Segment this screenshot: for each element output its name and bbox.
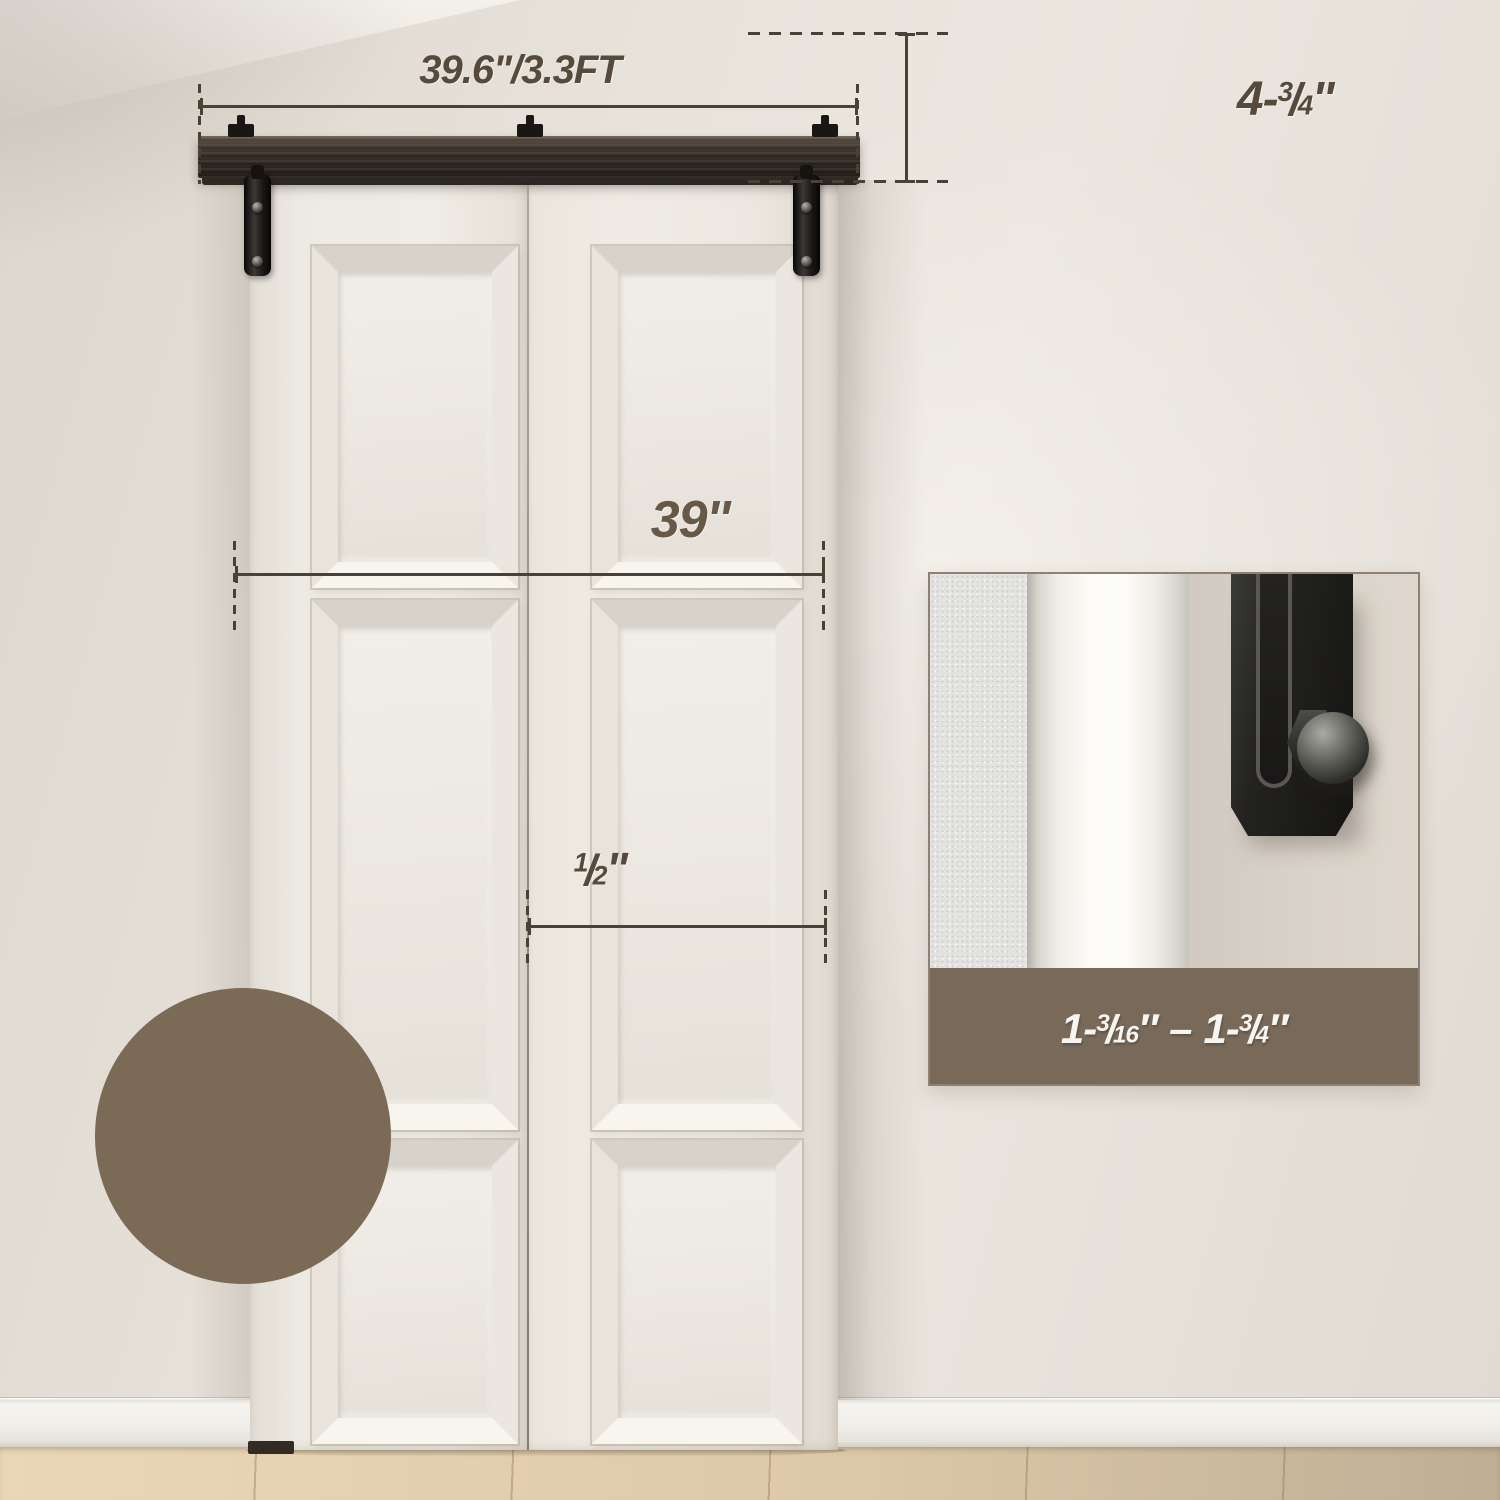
inset-door-edge bbox=[1027, 574, 1189, 968]
inset-hanger-strap bbox=[1231, 574, 1353, 836]
door-center-seam bbox=[527, 182, 529, 1450]
half-inch-dimension-label: 1/2'' bbox=[500, 842, 700, 896]
track-mount-clip bbox=[517, 124, 543, 137]
inset-dome-bolt bbox=[1297, 712, 1369, 784]
bifold-barn-door bbox=[250, 182, 838, 1450]
dashed-guide-line bbox=[526, 890, 529, 967]
door-shadow-right bbox=[836, 180, 926, 1400]
hanger-screw bbox=[252, 202, 263, 213]
hanger-screw bbox=[801, 256, 812, 267]
dashed-guide-line bbox=[824, 890, 827, 967]
dashed-guide-line bbox=[233, 541, 236, 637]
dashed-guide-line bbox=[748, 180, 948, 183]
track-mount-clip bbox=[228, 124, 254, 137]
hardware-closeup-inset: 1-3/16″–1-3/4″ bbox=[928, 572, 1420, 1086]
thickness-range-label: 1-3/16″–1-3/4″ bbox=[930, 968, 1418, 1084]
track-height-dimension-line bbox=[905, 33, 908, 183]
color-swatch-circle bbox=[95, 988, 391, 1284]
door-width-dimension-line bbox=[235, 573, 825, 576]
dashed-guide-line bbox=[748, 32, 948, 35]
inset-strap-slot bbox=[1256, 574, 1292, 788]
track-mount-clip bbox=[812, 124, 838, 137]
hanger-screw bbox=[801, 202, 812, 213]
inset-photo bbox=[930, 574, 1418, 968]
dashed-guide-line bbox=[822, 541, 825, 637]
track-width-dimension-line bbox=[200, 105, 858, 108]
dashed-guide-line bbox=[198, 84, 201, 184]
inset-caption-band: 1-3/16″–1-3/4″ bbox=[930, 968, 1418, 1084]
door-panel bbox=[592, 1140, 802, 1444]
dashed-guide-line bbox=[856, 84, 859, 184]
hanger-screw bbox=[252, 256, 263, 267]
product-dimension-diagram: 39.6"/3.3FT 4-3/4'' 39'' 1/2'' bbox=[0, 0, 1500, 1500]
track-width-dimension-label: 39.6"/3.3FT bbox=[320, 48, 720, 93]
half-inch-dimension-line bbox=[528, 925, 827, 928]
door-width-dimension-label: 39'' bbox=[580, 490, 800, 550]
barn-door-track bbox=[198, 136, 860, 178]
door-floor-guide bbox=[248, 1441, 294, 1454]
track-height-dimension-label: 4-3/4'' bbox=[1160, 72, 1410, 127]
door-panel bbox=[312, 246, 518, 588]
inset-wall-texture bbox=[930, 574, 1027, 968]
